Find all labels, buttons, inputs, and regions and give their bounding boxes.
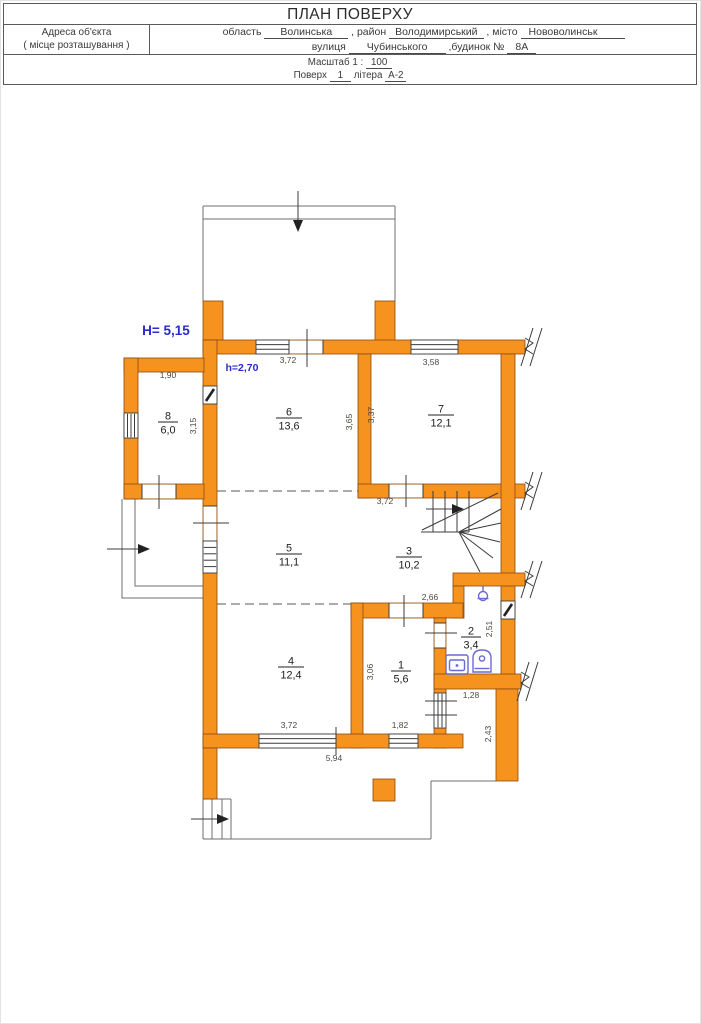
room-area: 12,1: [430, 418, 451, 430]
walls: [124, 301, 525, 801]
room-number: 1: [398, 660, 404, 672]
entrance-arrow-icon: [293, 191, 303, 232]
entrance-arrow-icon: [107, 544, 150, 554]
balcony-outline: [203, 191, 395, 301]
room-number: 6: [286, 407, 292, 419]
dimension-label: 3,72: [280, 355, 297, 365]
room-label-4: 4 12,4: [278, 656, 304, 682]
room-area: 10,2: [398, 560, 419, 572]
dimension-label: 3,15: [188, 417, 198, 434]
room-number: 5: [286, 543, 292, 555]
floor-plan-sheet: ПЛАН ПОВЕРХУ Адреса об'єкта ( місце розт…: [0, 0, 701, 1024]
room-area: 5,6: [393, 674, 408, 686]
dimension-label: 1,82: [392, 720, 409, 730]
wall-segment: [358, 354, 371, 498]
door-opening: [389, 603, 423, 618]
terrace-column: [373, 779, 395, 801]
room-number: 3: [406, 546, 412, 558]
room-area: 3,4: [463, 640, 478, 652]
wall-segment: [203, 340, 525, 354]
room-label-5: 5 11,1: [276, 543, 302, 569]
dimension-label: 2,66: [422, 592, 439, 602]
wall-segment: [203, 301, 223, 346]
window: [203, 541, 217, 573]
pendant-lamp-icon: [478, 586, 489, 601]
wall-segment: [496, 689, 518, 781]
entrance-arrow-icon: [191, 814, 229, 824]
ceiling-height-annotation: h=2,70: [226, 362, 259, 374]
window: [124, 413, 138, 438]
staircase: [421, 491, 501, 572]
room-area: 11,1: [279, 557, 299, 569]
dimension-label: 2,51: [484, 620, 494, 637]
room-label-6: 6 13,6: [276, 407, 302, 433]
room-area: 13,6: [278, 421, 299, 433]
door-opening: [434, 623, 446, 648]
window: [411, 340, 458, 354]
dimension-label: 2,43: [483, 725, 493, 742]
room-label-1: 1 5,6: [391, 660, 411, 686]
room-label-7: 7 12,1: [428, 404, 454, 430]
terrace-outline: [191, 781, 496, 839]
flue-vent: [501, 601, 515, 619]
floor-plan-drawing: 1 5,6 2 3,4 3 10,2 4 12,4 5: [1, 1, 701, 1024]
entrance-porch: [107, 499, 217, 598]
dimension-label: 1,28: [463, 690, 480, 700]
wall-segment: [351, 603, 363, 748]
room-area: 6,0: [160, 425, 175, 437]
window: [434, 693, 446, 728]
room-number: 2: [468, 626, 474, 638]
dimension-label: 3,37: [366, 406, 376, 423]
door-opening: [289, 340, 323, 354]
wall-segment: [203, 748, 217, 799]
room-label-8: 8 6,0: [158, 411, 178, 437]
dimension-label: 3,06: [365, 663, 375, 680]
dimension-label: 3,72: [377, 496, 394, 506]
building-height-annotation: H= 5,15: [142, 323, 190, 338]
room-number: 4: [288, 656, 294, 668]
toilet-icon: [473, 650, 491, 672]
room-number: 8: [165, 411, 171, 423]
room-label-2: 2 3,4: [461, 626, 481, 652]
washbasin-icon: [446, 655, 468, 674]
room-number: 7: [438, 404, 444, 416]
dimension-label: 3,65: [344, 413, 354, 430]
window: [259, 734, 336, 748]
dimension-label: 1,90: [160, 370, 177, 380]
dimension-label: 3,72: [281, 720, 298, 730]
wall-segment: [501, 354, 515, 689]
flue-vent: [203, 386, 217, 404]
room-label-3: 3 10,2: [396, 546, 422, 572]
dimension-label: 3,58: [423, 357, 440, 367]
wall-segment: [434, 674, 521, 689]
wall-segment: [453, 573, 525, 586]
room-area: 12,4: [280, 670, 301, 682]
window: [389, 734, 418, 748]
dimension-label: 5,94: [326, 753, 343, 763]
wall-segment: [375, 301, 395, 346]
window: [256, 340, 289, 354]
wall-break-marks: [517, 328, 542, 701]
